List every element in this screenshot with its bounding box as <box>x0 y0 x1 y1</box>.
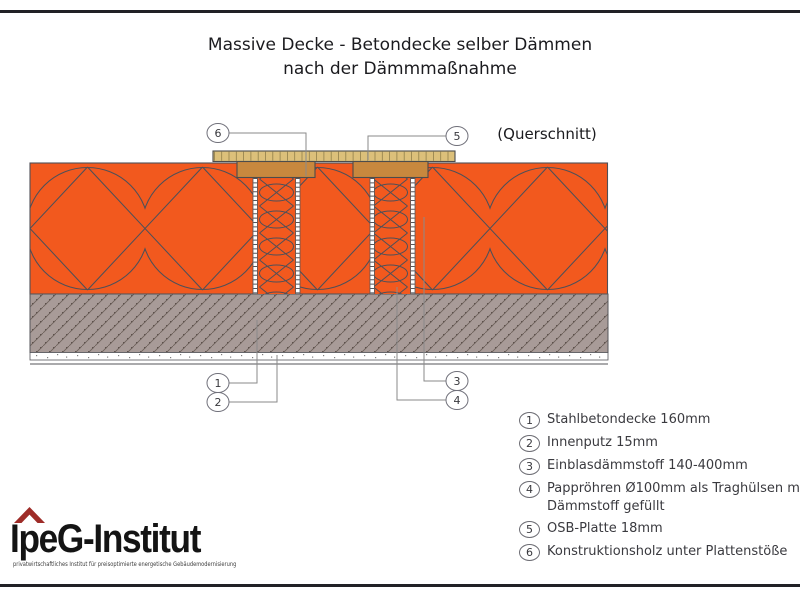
callout-1: 1 <box>207 374 229 393</box>
callout-4: 4 <box>446 391 468 410</box>
callout-2-number: 2 <box>215 396 222 409</box>
legend-item-2: 2 Innenputz 15mm <box>519 434 800 452</box>
legend-item-5: 5 OSB-Platte 18mm <box>519 520 800 538</box>
logo-tagline: privatwirtschaftliches Institut für prei… <box>13 561 236 568</box>
callout-1-number: 1 <box>215 377 222 390</box>
legend: 1 Stahlbetondecke 160mm 2 Innenputz 15mm… <box>519 411 800 566</box>
timber-block-right <box>353 162 428 178</box>
legend-item-5-label: OSB-Platte 18mm <box>547 520 663 538</box>
legend-item-1-number: 1 <box>519 412 540 429</box>
legend-item-2-number: 2 <box>519 435 540 452</box>
plaster-layer <box>30 353 608 365</box>
callout-3: 3 <box>446 372 468 391</box>
drawing-sheet: Massive Decke - Betondecke selber Dämmen… <box>0 0 800 600</box>
legend-item-6-label: Konstruktionsholz unter Plattenstöße <box>547 543 787 561</box>
ipeg-logo: IpeG-Institut privatwirtschaftliches Ins… <box>10 488 310 578</box>
legend-item-2-label: Innenputz 15mm <box>547 434 658 452</box>
cardboard-tube-left <box>253 178 300 295</box>
legend-item-4: 4 Pappröhren Ø100mm als Traghülsen mit D… <box>519 480 800 515</box>
concrete-slab-layer <box>30 294 608 353</box>
legend-item-6: 6 Konstruktionsholz unter Plattenstöße <box>519 543 800 561</box>
insulation-layer <box>30 163 608 294</box>
callout-6-number: 6 <box>215 127 222 140</box>
legend-item-3: 3 Einblasdämmstoff 140-400mm <box>519 457 800 475</box>
cardboard-tube-right <box>370 178 415 295</box>
legend-item-3-label: Einblasdämmstoff 140-400mm <box>547 457 748 475</box>
callout-4-number: 4 <box>454 394 461 407</box>
legend-item-4-label: Pappröhren Ø100mm als Traghülsen mit Däm… <box>547 480 800 515</box>
callout-3-number: 3 <box>454 375 461 388</box>
legend-item-3-number: 3 <box>519 458 540 475</box>
legend-item-6-number: 6 <box>519 544 540 561</box>
legend-item-1-label: Stahlbetondecke 160mm <box>547 411 710 429</box>
legend-item-1: 1 Stahlbetondecke 160mm <box>519 411 800 429</box>
callout-5: 5 <box>446 127 468 146</box>
callout-5-number: 5 <box>454 130 461 143</box>
legend-item-5-number: 5 <box>519 521 540 538</box>
legend-item-4-number: 4 <box>519 481 540 498</box>
callout-2: 2 <box>207 393 229 412</box>
callout-6: 6 <box>207 124 229 143</box>
osb-board <box>213 151 455 162</box>
timber-block-left <box>237 162 315 178</box>
logo-wordmark: IpeG-Institut <box>10 517 200 562</box>
